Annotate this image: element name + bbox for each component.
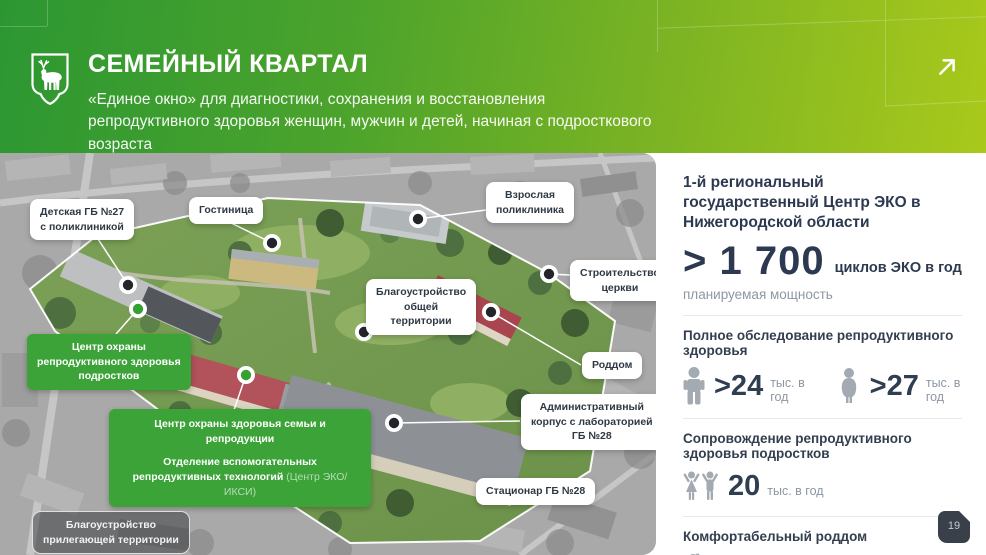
page-subtitle: «Единое окно» для диагностики, сохранени… [88, 89, 670, 156]
stat-teens: 20 тыс. в год [683, 470, 824, 503]
section-heading-screening: Полное обследование репродуктивного здор… [683, 328, 962, 358]
header-deco-line [885, 0, 886, 106]
map-label-family-health-center: Центр охраны здоровья семьи и репродукци… [109, 409, 371, 507]
map-label-common-area-improvement: Благоустройство общей территории [366, 279, 476, 335]
header-deco-line [657, 0, 658, 52]
header-deco-line [0, 26, 47, 27]
stat-unit: тыс. в год [767, 484, 823, 498]
aerial-map: Детская ГБ №27 с поликлиникой Гостиница … [0, 153, 656, 555]
screening-stats: >24 тыс. в год >27 тыс. в год [683, 367, 962, 405]
map-label-adult-clinic: Взрослая поликлиника [486, 182, 574, 223]
header-banner: СЕМЕЙНЫЙ КВАРТАЛ «Единое окно» для диагн… [0, 0, 986, 153]
teens-stats: 20 тыс. в год [683, 470, 962, 503]
map-label-church-construction: Строительство церкви [570, 260, 656, 301]
section-heading-maternity: Комфортабельный роддом [683, 529, 962, 544]
section-heading-teens: Сопровождение репродуктивного здоровья п… [683, 431, 962, 461]
map-marker-dark[interactable] [263, 234, 281, 252]
header-deco-line [657, 16, 986, 28]
stat-value: >24 [714, 370, 763, 403]
map-marker-green[interactable] [237, 366, 255, 384]
map-marker-dark[interactable] [482, 303, 500, 321]
male-icon [683, 367, 705, 405]
arrow-up-right-icon[interactable] [936, 56, 958, 78]
page-title: СЕМЕЙНЫЙ КВАРТАЛ [88, 50, 688, 79]
stat-unit: тыс. в год [770, 376, 806, 404]
capacity-stat: > 1 700 циклов ЭКО в год [683, 241, 962, 281]
stat-unit: тыс. в год [926, 376, 962, 404]
map-label-maternity-hospital: Роддом [582, 352, 642, 379]
map-label-adjacent-area-improvement: Благоустройство прилегающей территории [32, 511, 190, 554]
female-icon [837, 368, 861, 404]
page-number-badge: 19 [938, 511, 970, 543]
header-titles: СЕМЕЙНЫЙ КВАРТАЛ «Единое окно» для диагн… [88, 50, 688, 156]
map-marker-dark[interactable] [385, 414, 403, 432]
panel-title: 1-й региональный государственный Центр Э… [683, 173, 962, 233]
stat-men: >24 тыс. в год [683, 367, 807, 405]
capacity-value: > 1 700 [683, 241, 825, 281]
map-marker-dark[interactable] [409, 210, 427, 228]
city-crest-deer-icon [30, 52, 70, 106]
stat-value: >27 [870, 370, 919, 403]
header-deco-line [885, 100, 986, 106]
header-deco-line [47, 0, 48, 26]
map-label-children-hospital: Детская ГБ №27 с поликлиникой [30, 199, 134, 240]
divider [683, 516, 962, 517]
page-number: 19 [938, 520, 970, 532]
capacity-unit: циклов ЭКО в год [835, 260, 962, 276]
map-label-inpatient-building: Стационар ГБ №28 [476, 478, 595, 505]
map-marker-dark[interactable] [540, 265, 558, 283]
map-label-teen-health-center: Центр охраны репродуктивного здоровья по… [27, 334, 191, 390]
teenagers-icon [683, 471, 719, 503]
divider [683, 315, 962, 316]
stat-women: >27 тыс. в год [837, 368, 962, 404]
slide: СЕМЕЙНЫЙ КВАРТАЛ «Единое окно» для диагн… [0, 0, 986, 555]
map-marker-dark[interactable] [119, 276, 137, 294]
divider [683, 418, 962, 419]
map-label-admin-building: Административный корпус с лабораторией Г… [521, 394, 656, 450]
map-label-hotel: Гостиница [189, 197, 263, 224]
capacity-note: планируемая мощность [683, 287, 962, 302]
map-marker-green[interactable] [129, 300, 147, 318]
stat-value: 20 [728, 470, 760, 503]
info-panel: 1-й региональный государственный Центр Э… [656, 153, 986, 555]
